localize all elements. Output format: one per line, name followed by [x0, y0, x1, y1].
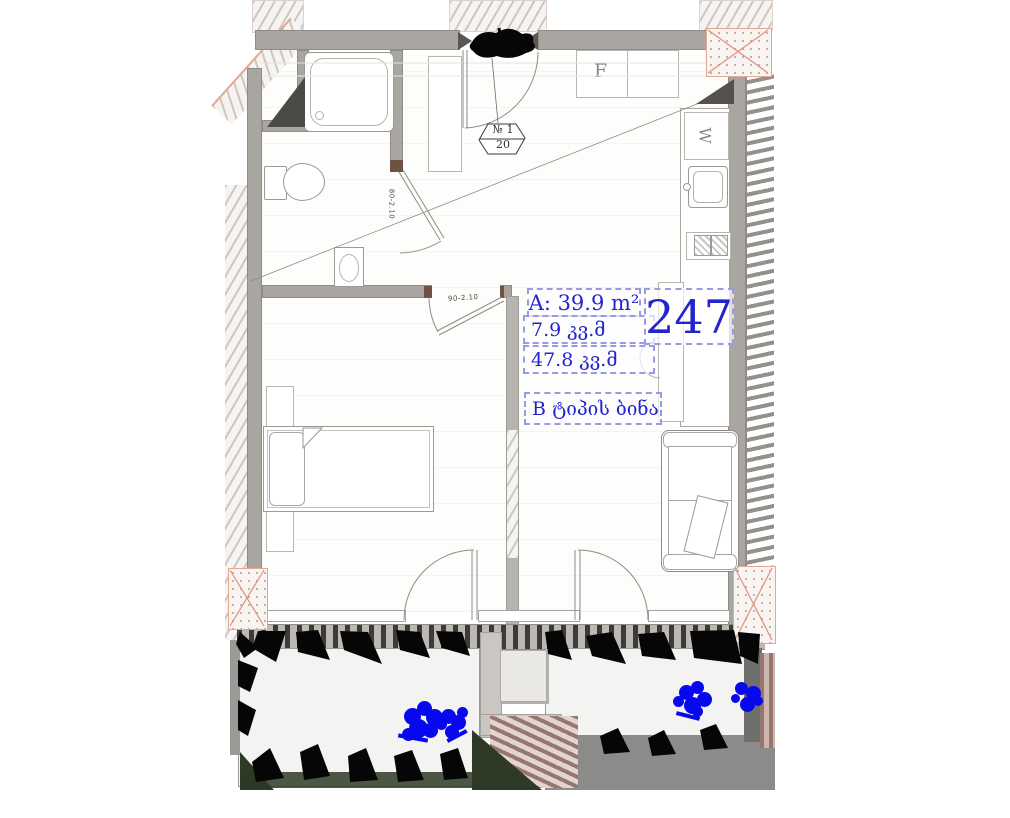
window-living-south	[648, 610, 730, 622]
bedroom-door-jamb-right	[500, 286, 504, 298]
column-bottom-right	[733, 566, 776, 644]
apartment-number-text: 247	[645, 290, 733, 344]
area-balcony-text: 7.9 კვ.მ	[531, 319, 605, 341]
party-wall-hatch-top-right	[699, 0, 773, 31]
area-total-box[interactable]: 47.8 კვ.მ	[523, 345, 655, 374]
bathtub-drain	[315, 111, 324, 120]
sofa-cushion-top	[668, 446, 732, 502]
bath-sink-basin	[339, 254, 359, 282]
lower-floor-gray-zone	[545, 735, 775, 790]
partition-hatch	[507, 430, 518, 558]
area-main-box[interactable]: A: 39.9 m²	[527, 288, 641, 317]
floor-plan-page: F W	[0, 0, 1010, 818]
window-bedroom-south	[262, 610, 406, 622]
fridge-label: F	[594, 60, 607, 82]
bed-pillow	[269, 432, 305, 506]
gray-strip-left-of-balcony	[230, 640, 240, 755]
stove-burner-right	[711, 235, 728, 256]
unit-badge-number: № 1	[483, 122, 523, 137]
nightstand-bottom	[266, 508, 294, 552]
hall-wardrobe	[428, 56, 462, 172]
column-bottom-left	[228, 568, 268, 630]
wall-top-right-segment	[538, 30, 708, 50]
washer-label: W	[696, 127, 715, 143]
apartment-type-text: B ტიპის ბინა	[532, 398, 659, 420]
grass-band-left-balcony	[240, 772, 478, 788]
apartment-number-box[interactable]: 247	[644, 288, 734, 345]
stove-burner-left	[694, 235, 711, 256]
wall-top-left-segment	[255, 30, 460, 50]
unit-badge-capacity: 20	[483, 137, 523, 152]
area-total-text: 47.8 კვ.მ	[531, 349, 617, 371]
kitchen-faucet	[683, 183, 691, 191]
wall-closet-bottom	[262, 120, 309, 132]
sofa-armrest-bottom	[663, 554, 737, 570]
bedroom-door-jamb-left	[424, 286, 432, 298]
nightstand-top	[266, 386, 294, 430]
area-balcony-box[interactable]: 7.9 კვ.მ	[523, 315, 655, 344]
bathroom-door-jamb	[390, 160, 403, 172]
apartment-type-box[interactable]: B ტიპის ბინა	[524, 392, 662, 425]
kitchen-cabinet-top	[627, 50, 679, 98]
balcony-table	[500, 650, 547, 702]
area-main-text: A: 39.9 m²	[529, 291, 640, 315]
kitchen-sink-basin	[693, 171, 723, 203]
column-top-right	[706, 28, 772, 77]
door-size-label-bath: 80-2.10	[387, 189, 395, 220]
wall-left	[247, 68, 262, 642]
window-center-south	[478, 610, 580, 622]
party-wall-hatch-top-entry	[449, 0, 547, 32]
neighbor-ribs-right	[746, 70, 774, 632]
